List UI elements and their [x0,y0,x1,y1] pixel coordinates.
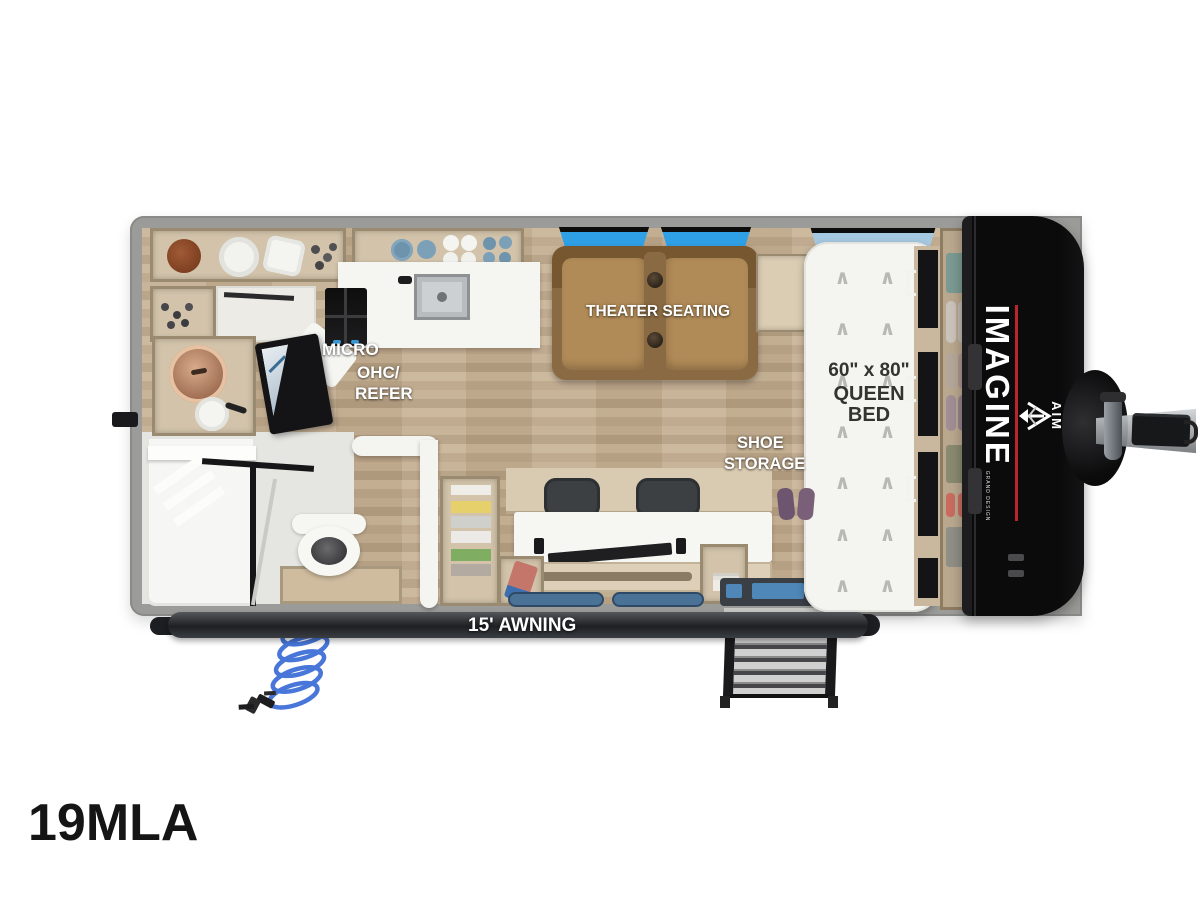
label-theater-seating: THEATER SEATING [586,303,730,321]
chevron-up-icon: ∧ [879,473,895,493]
stored-shoes-gray [946,301,956,343]
white-plate-icon [461,235,477,251]
cabinet-door-panel [918,452,938,536]
blue-bowl-icon [391,239,413,261]
utensils-icon [311,245,320,254]
hitch-coupler [1131,413,1190,447]
label-bed-size: 60" x 80" [804,360,934,382]
utensils-icon [329,243,337,251]
counter-panel-white [216,286,316,342]
blue-bowl-icon [417,240,436,259]
dark-utensil-icon [185,303,193,311]
cap-vent-mark [1008,554,1024,561]
storage-shelf-unit [440,476,500,606]
utensils-icon [315,261,324,270]
blue-cup-icon [499,236,512,249]
toilet-bowl [298,526,360,576]
overhead-cabinet-dishes-left [150,228,346,282]
imagine-tagline: GRAND DESIGN [982,471,990,522]
chevron-up-icon: ∧ [834,576,850,596]
chevron-up-icon: ∧ [879,576,895,596]
dark-utensil-icon [167,321,175,329]
chevron-up-icon: ∧ [879,319,895,339]
stored-shoes-mauve [946,395,956,431]
white-plate-icon [443,235,459,251]
entry-mat-blue-small [726,584,742,598]
bin-white [451,531,491,543]
shelf-slot [451,485,491,495]
label-ohc: OHC/ [357,363,400,383]
floor-mat-blue [508,592,604,607]
cupholder-icon [647,332,663,348]
stored-flipflops-red [946,493,955,517]
bin-taupe [451,564,491,576]
dark-utensil-icon [173,311,181,319]
tongue-jack [1104,396,1122,460]
step-foot [720,696,730,708]
bin-gray [451,516,491,528]
dish-square-icon [262,234,307,277]
bin-yellow [451,501,491,513]
towel-bar-icon [224,292,294,301]
nightstand [756,254,810,332]
cupholder-icon [647,272,663,288]
plate-white-icon [219,237,259,277]
aim-series-label: AIM [1048,394,1064,438]
floorplan-canvas: MICRO OHC/ REFER THEATER SEATING [0,0,1200,900]
cabinet-door-panel [918,250,938,328]
bowl-brown-icon [167,239,201,273]
pan-white-icon [195,397,229,431]
utensils-icon [323,253,332,262]
dark-utensil-icon [181,319,189,327]
chevron-up-icon: ∧ [879,525,895,545]
bin-green [451,549,491,561]
chevron-up-icon: ∧ [879,268,895,288]
bed-mattress-pattern: ∧∧ ∧∧ ∧∧ ∧∧ ∧∧ ∧∧ ∧∧ [820,268,910,596]
label-bed-queen: QUEEN [804,383,934,406]
chevron-up-icon: ∧ [834,268,850,288]
rear-bumper-handle [112,412,138,427]
entry-mat-blue [752,583,804,599]
floorplan-model-name: 19MLA [28,793,198,853]
chevron-up-icon: ∧ [834,473,850,493]
floor-mat-blue [612,592,704,607]
imagine-wordmark: IMAGINE [982,305,1012,467]
toilet-seat [311,537,347,565]
desk-knob [534,538,544,554]
floor-shoes [776,487,795,520]
stove-grate-line [344,288,347,346]
label-micro: MICRO [322,340,379,360]
step-foot [828,696,838,708]
floor-shoes [797,487,816,520]
label-storage: STORAGE [724,455,805,474]
chevron-up-icon: ∧ [834,319,850,339]
sink-drain-icon [437,292,447,302]
kitchen-sink [414,274,470,320]
desk-knob [676,538,686,554]
label-shoe: SHOE [737,434,784,453]
tongue-jack-cap [1100,392,1126,402]
cap-vent-mark [1008,570,1024,577]
dark-utensil-icon [161,303,169,311]
chevron-up-icon: ∧ [834,525,850,545]
cap-seam [974,216,976,616]
label-awning: 15' AWNING [468,615,576,637]
label-bed-bed: BED [804,404,934,427]
blue-cup-icon [483,237,496,250]
stored-shoes-taupe [946,353,956,389]
label-refer: REFER [355,384,413,404]
cabinet-utensil-left [150,286,216,342]
bath-vanity [152,336,256,436]
entry-steps [723,636,837,698]
stove-cooktop [325,288,367,346]
drawer-slot [540,572,692,581]
kitchen-faucet-icon [398,276,412,284]
partition-wall-side [420,440,438,608]
cabinet-door-panel [918,558,938,598]
